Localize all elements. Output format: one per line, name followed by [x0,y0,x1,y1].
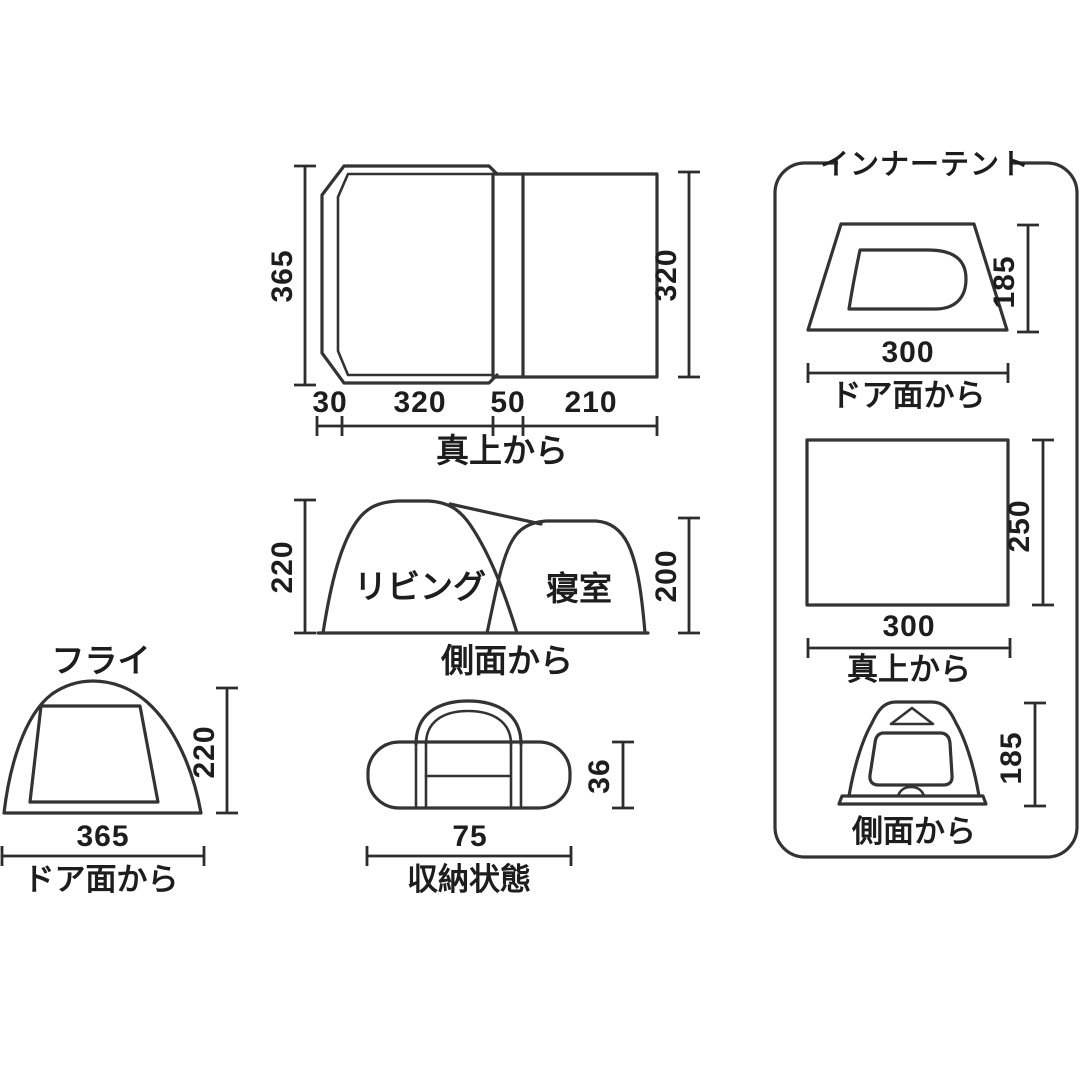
inner-side-view-outline [849,702,979,796]
dim-label-50: 50 [490,386,525,419]
inner-door-view-caption: ドア面から [831,378,986,413]
top-view-caption: 真上から [436,432,568,469]
dim-label-300-door: 300 [881,336,934,369]
dim-label-250: 250 [1003,499,1036,552]
inner-side-door-outline [870,733,952,785]
packed-caption: 収納状態 [407,862,531,897]
dim-label-365-fly: 365 [76,820,129,853]
dim-label-185-side: 185 [995,731,1028,784]
tent-spec-diagram: 365 320 30 320 50 210 真上から 220 200 リ [0,0,1080,1066]
diagram-svg: 365 320 30 320 50 210 真上から 220 200 リ [0,0,1080,1066]
living-room-label: リビング [354,568,486,605]
dimension-365-left: 365 [266,166,316,385]
dimension-185-side-view: 185 [995,703,1046,806]
dimension-220-side-left: 220 [266,500,316,633]
dimension-200-side-right: 200 [650,518,700,633]
dimension-300-door-view: 300 [808,336,1008,383]
dim-label-30: 30 [312,386,347,419]
dimension-250-top-view: 250 [1003,440,1054,605]
bag-handle-inner-arch [426,711,511,744]
side-view-caption: 側面から [440,642,573,679]
bedroom-label: 寝室 [546,570,612,607]
dim-label-300-top: 300 [882,610,935,643]
bag-strap-lines [416,743,521,806]
dimension-bottom-segments: 30 320 50 210 [312,386,657,436]
dim-label-320b: 320 [393,386,446,419]
bedroom-footprint-outline [493,174,657,377]
inner-top-view-caption: 真上から [847,652,971,687]
packed-bag-view: 36 75 収納状態 [367,701,634,897]
fly-front-view: フライ 220 365 ドア面から [2,642,238,897]
living-dome-outline [323,501,517,633]
fly-footprint-inner-outline [338,174,492,375]
inner-tent-title: インナーテント [820,149,1030,181]
dim-label-320: 320 [650,248,683,301]
dimension-300-top-view: 300 [808,610,1010,658]
inner-door-opening [849,250,966,309]
inner-tent-side-view: 185 側面から [839,702,1046,849]
inner-tent-door-view: 185 300 ドア面から [808,224,1039,413]
inner-side-vent-triangle [891,708,933,724]
dim-label-36: 36 [583,758,616,793]
dim-label-185-door: 185 [988,255,1021,308]
dim-label-75: 75 [452,820,487,853]
dimension-75-bag: 75 [367,820,571,866]
dimension-36-bag: 36 [583,742,634,808]
inner-tent-top-view: 250 300 真上から [807,440,1054,687]
side-view: 220 200 リビング 寝室 側面から [266,500,700,679]
inner-side-base-band [839,796,986,804]
fly-title: フライ [52,642,151,679]
dim-label-210: 210 [564,386,617,419]
dim-label-220-fly: 220 [188,725,221,778]
inner-tent-panel: インナーテント 185 300 ドア面から 250 300 [775,148,1077,857]
fly-footprint-outer-outline [322,166,497,383]
dim-label-220-side: 220 [266,540,299,593]
fly-front-caption: ドア面から [24,862,179,897]
dimension-185-door-view: 185 [988,225,1039,332]
fly-ridge-line [450,504,541,524]
fly-door-outline [30,706,158,802]
inner-top-view-outline [807,440,1008,605]
fly-dome-outline [4,681,201,813]
dim-label-200-side: 200 [650,549,683,602]
dim-label-365: 365 [266,249,299,302]
inner-side-view-caption: 側面から [851,814,976,849]
bag-handle-outer-arch [416,701,521,744]
dimension-365-fly: 365 [2,820,204,866]
inner-door-view-outline [808,224,1007,330]
fly-top-view: 365 320 30 320 50 210 真上から [266,166,700,469]
